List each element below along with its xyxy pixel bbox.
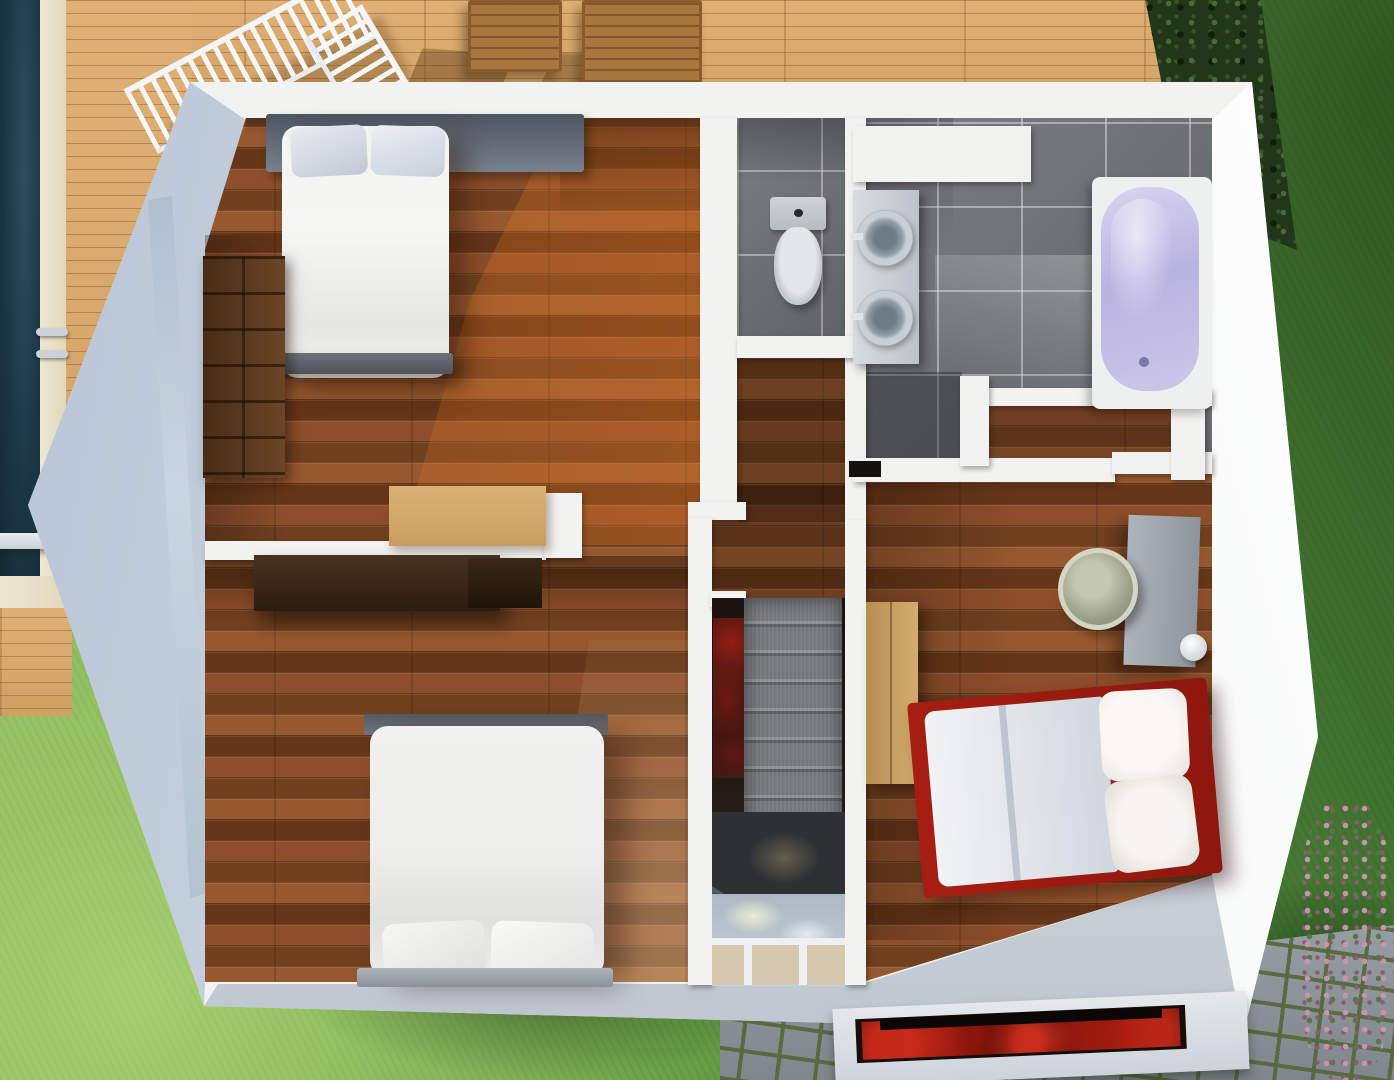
bed1-pillow-left [290,124,369,178]
sink-basin-2 [857,290,913,346]
bed1-pillow-right [370,125,446,178]
bed3-pillow-bottom [1103,773,1202,875]
sink-faucet-2 [851,313,863,320]
staircase-straight-flight [744,598,842,832]
bed3-pillow-top [1098,688,1191,782]
pool-ladder-bar-2 [36,350,68,358]
bedroom2-dresser-right [468,558,542,608]
toilet-flush-button [794,209,803,217]
tan-rug [389,486,546,546]
bed3-duvet [924,696,1119,887]
floorplan-scene [0,0,1394,1080]
wall-divider-jamb [544,493,582,558]
wall-alcove-left [960,376,989,466]
bathtub-drain [1139,357,1149,367]
ground-floor-entry-mullion-1 [744,942,752,985]
bedroom1-wardrobe-divider [242,256,245,478]
bed1-footboard [273,353,453,374]
deck-chair-2 [582,0,702,86]
bedroom3-wardrobe-line [890,602,892,784]
toilet-bowl [774,227,822,305]
bedroom3-desk-lamp [1180,634,1207,661]
wall-hall-bedroom3 [845,520,866,985]
door-slot-dark [849,461,881,477]
wc-tile-shade [737,118,845,182]
bedroom2-dresser [254,555,500,611]
staircase-lower-glow [748,832,820,884]
deck-chair-1 [468,0,562,72]
wall-bedroom1-wc [700,118,737,510]
bathroom-shelf-block [853,126,1031,182]
deck-bottom-left [0,604,72,716]
bedroom3-round-chair [1058,548,1138,630]
ground-floor-entry-frame [712,938,845,945]
bathtub-highlight [1111,199,1173,323]
wall-hall-left [688,518,712,985]
bed2-footboard [357,968,613,987]
sink-basin-1 [857,210,913,266]
pink-shrub [1298,800,1394,1080]
wall-wc-bottom [737,336,866,358]
ground-floor-light-spot-1 [722,898,784,934]
bedroom3-tan-wardrobe [866,602,918,784]
pool-ladder-bar-1 [36,328,68,336]
ground-floor-entry-mullion-2 [799,942,807,985]
sink-faucet-1 [851,233,863,240]
ground-floor-entry-floor [712,942,845,985]
